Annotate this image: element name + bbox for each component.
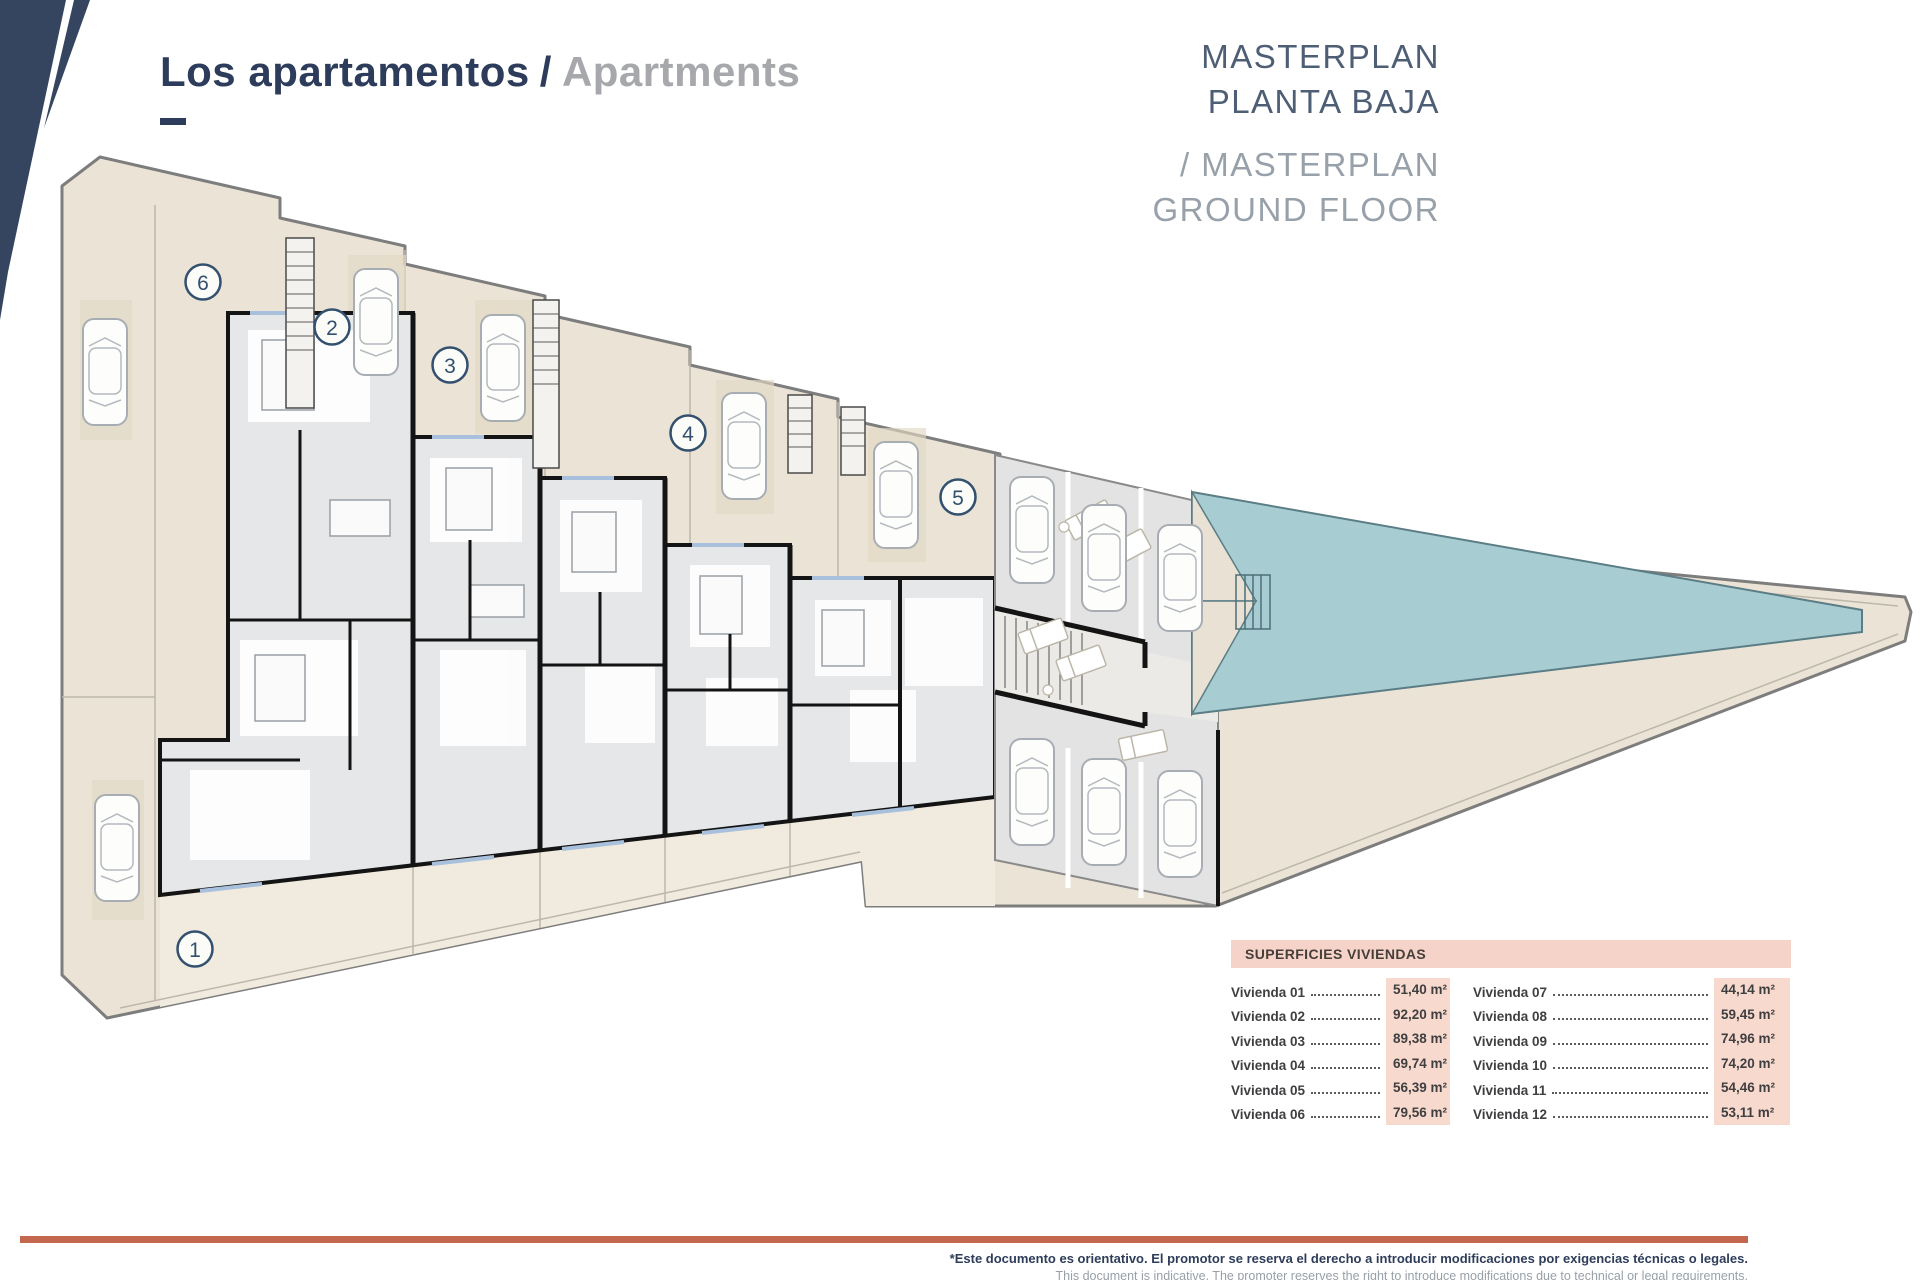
table-row: Vivienda 0151,40 m² — [1231, 978, 1450, 1003]
table-row: Vivienda 0859,45 m² — [1473, 1003, 1790, 1028]
footer-accent-bar — [20, 1236, 1748, 1243]
table-row: Vivienda 0679,56 m² — [1231, 1101, 1450, 1126]
svg-text:4: 4 — [682, 423, 694, 446]
svg-text:6: 6 — [197, 272, 209, 295]
table-row: Vivienda 0389,38 m² — [1231, 1027, 1450, 1052]
unit-label-5: 5 — [941, 480, 976, 515]
table-row: Vivienda 0556,39 m² — [1231, 1076, 1450, 1101]
svg-text:2: 2 — [326, 317, 338, 340]
table-row: Vivienda 0292,20 m² — [1231, 1003, 1450, 1028]
table-row: Vivienda 1154,46 m² — [1473, 1076, 1790, 1101]
unit-label-1: 1 — [178, 932, 213, 967]
svg-text:1: 1 — [189, 939, 201, 962]
brochure-page: { "header": { "title_primary": "Los apar… — [0, 0, 1920, 1280]
svg-text:3: 3 — [444, 355, 456, 378]
table-row: Vivienda 0469,74 m² — [1231, 1052, 1450, 1077]
table-row: Vivienda 1253,11 m² — [1473, 1101, 1790, 1126]
table-row: Vivienda 1074,20 m² — [1473, 1052, 1790, 1077]
table-row: Vivienda 0974,96 m² — [1473, 1027, 1790, 1052]
areas-table-right-column: Vivienda 0744,14 m² Vivienda 0859,45 m² … — [1473, 978, 1790, 1125]
unit-label-4: 4 — [671, 416, 706, 451]
areas-table-title: SUPERFICIES VIVIENDAS — [1231, 940, 1791, 968]
areas-table-left-column: Vivienda 0151,40 m² Vivienda 0292,20 m² … — [1231, 978, 1450, 1125]
areas-table: SUPERFICIES VIVIENDAS Vivienda 0151,40 m… — [1231, 940, 1791, 1125]
unit-label-6: 6 — [186, 265, 221, 300]
footer-disclaimer-en: This document is indicative. The promote… — [1056, 1269, 1748, 1280]
unit-label-2: 2 — [315, 310, 350, 345]
unit-label-3: 3 — [433, 348, 468, 383]
svg-text:5: 5 — [952, 487, 964, 510]
table-row: Vivienda 0744,14 m² — [1473, 978, 1790, 1003]
footer-disclaimer-es: *Este documento es orientativo. El promo… — [950, 1251, 1748, 1266]
